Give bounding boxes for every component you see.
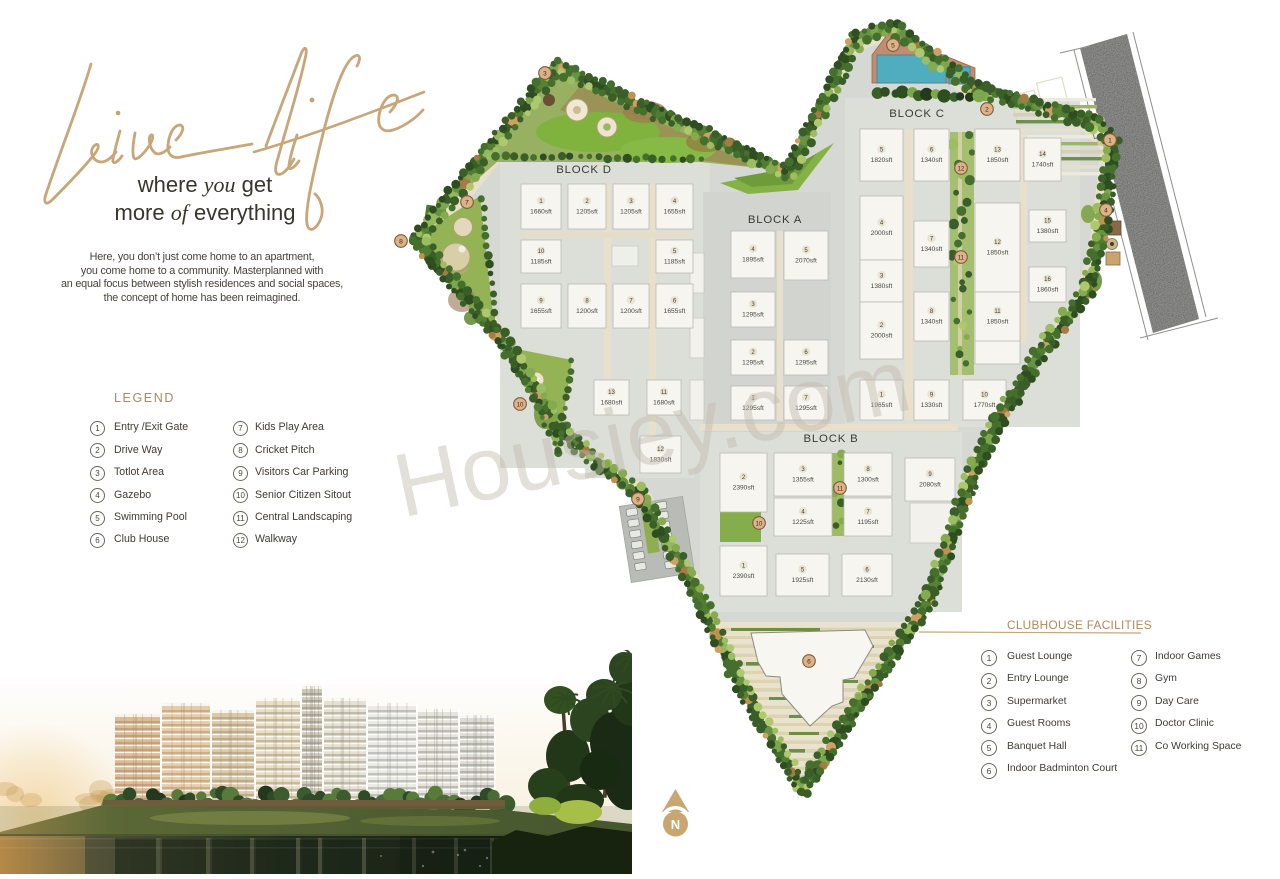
svg-text:9: 9 [636, 496, 640, 503]
svg-text:1655sft: 1655sft [664, 308, 686, 315]
svg-text:8: 8 [399, 238, 403, 245]
svg-text:4: 4 [1104, 207, 1108, 214]
svg-text:2390sft: 2390sft [733, 573, 755, 580]
svg-text:1200sft: 1200sft [620, 308, 642, 315]
svg-text:1195sft: 1195sft [857, 519, 878, 526]
svg-text:2080sft: 2080sft [919, 482, 941, 489]
svg-text:BLOCK A: BLOCK A [748, 214, 802, 226]
svg-text:10: 10 [538, 249, 545, 255]
svg-text:3: 3 [543, 70, 547, 77]
svg-text:1740sft: 1740sft [1032, 162, 1054, 169]
svg-text:5: 5 [891, 42, 895, 49]
svg-text:1340sft: 1340sft [921, 246, 943, 253]
svg-text:1820sft: 1820sft [871, 157, 893, 164]
svg-text:2000sft: 2000sft [871, 230, 893, 237]
svg-text:1295sft: 1295sft [742, 312, 764, 319]
svg-text:1770sft: 1770sft [974, 402, 996, 409]
svg-text:1: 1 [1108, 137, 1112, 144]
svg-text:11: 11 [958, 255, 965, 261]
svg-text:1380sft: 1380sft [871, 283, 893, 290]
svg-text:1655sft: 1655sft [530, 308, 552, 315]
svg-text:1355sft: 1355sft [792, 477, 814, 484]
svg-text:14: 14 [1039, 152, 1046, 158]
svg-text:1205sft: 1205sft [620, 209, 642, 216]
svg-text:11: 11 [837, 486, 844, 492]
svg-text:1185sft: 1185sft [664, 259, 685, 266]
svg-text:16: 16 [1044, 277, 1051, 283]
svg-text:12: 12 [958, 166, 965, 172]
svg-text:12: 12 [994, 240, 1001, 246]
svg-text:2130sft: 2130sft [856, 577, 878, 584]
svg-text:15: 15 [1044, 219, 1051, 225]
svg-text:1850sft: 1850sft [987, 157, 1009, 164]
svg-text:1925sft: 1925sft [792, 577, 814, 584]
svg-text:2390sft: 2390sft [733, 485, 755, 492]
svg-text:1895sft: 1895sft [742, 257, 764, 264]
svg-text:1185sft: 1185sft [530, 259, 551, 266]
svg-text:1850sft: 1850sft [987, 319, 1009, 326]
svg-text:1330sft: 1330sft [921, 402, 943, 409]
svg-text:2: 2 [985, 106, 989, 113]
svg-text:1225sft: 1225sft [792, 519, 814, 526]
svg-text:1850sft: 1850sft [987, 250, 1009, 257]
svg-text:1300sft: 1300sft [857, 477, 879, 484]
svg-text:1380sft: 1380sft [1037, 228, 1059, 235]
svg-text:13: 13 [994, 148, 1001, 154]
svg-text:10: 10 [756, 521, 763, 527]
svg-text:11: 11 [994, 309, 1001, 315]
svg-text:1205sft: 1205sft [576, 209, 598, 216]
svg-text:10: 10 [981, 393, 988, 399]
svg-text:1340sft: 1340sft [921, 157, 943, 164]
svg-text:BLOCK D: BLOCK D [556, 164, 612, 176]
svg-text:1340sft: 1340sft [921, 319, 943, 326]
svg-text:1200sft: 1200sft [576, 308, 598, 315]
svg-text:BLOCK C: BLOCK C [889, 108, 945, 120]
svg-text:6: 6 [807, 658, 811, 665]
svg-text:10: 10 [517, 402, 524, 408]
svg-text:1660sft: 1660sft [530, 209, 552, 216]
svg-text:1860sft: 1860sft [1037, 287, 1059, 294]
svg-text:7: 7 [465, 199, 469, 206]
svg-text:1655sft: 1655sft [664, 209, 686, 216]
svg-text:2070sft: 2070sft [795, 258, 817, 265]
svg-text:N: N [671, 817, 680, 832]
